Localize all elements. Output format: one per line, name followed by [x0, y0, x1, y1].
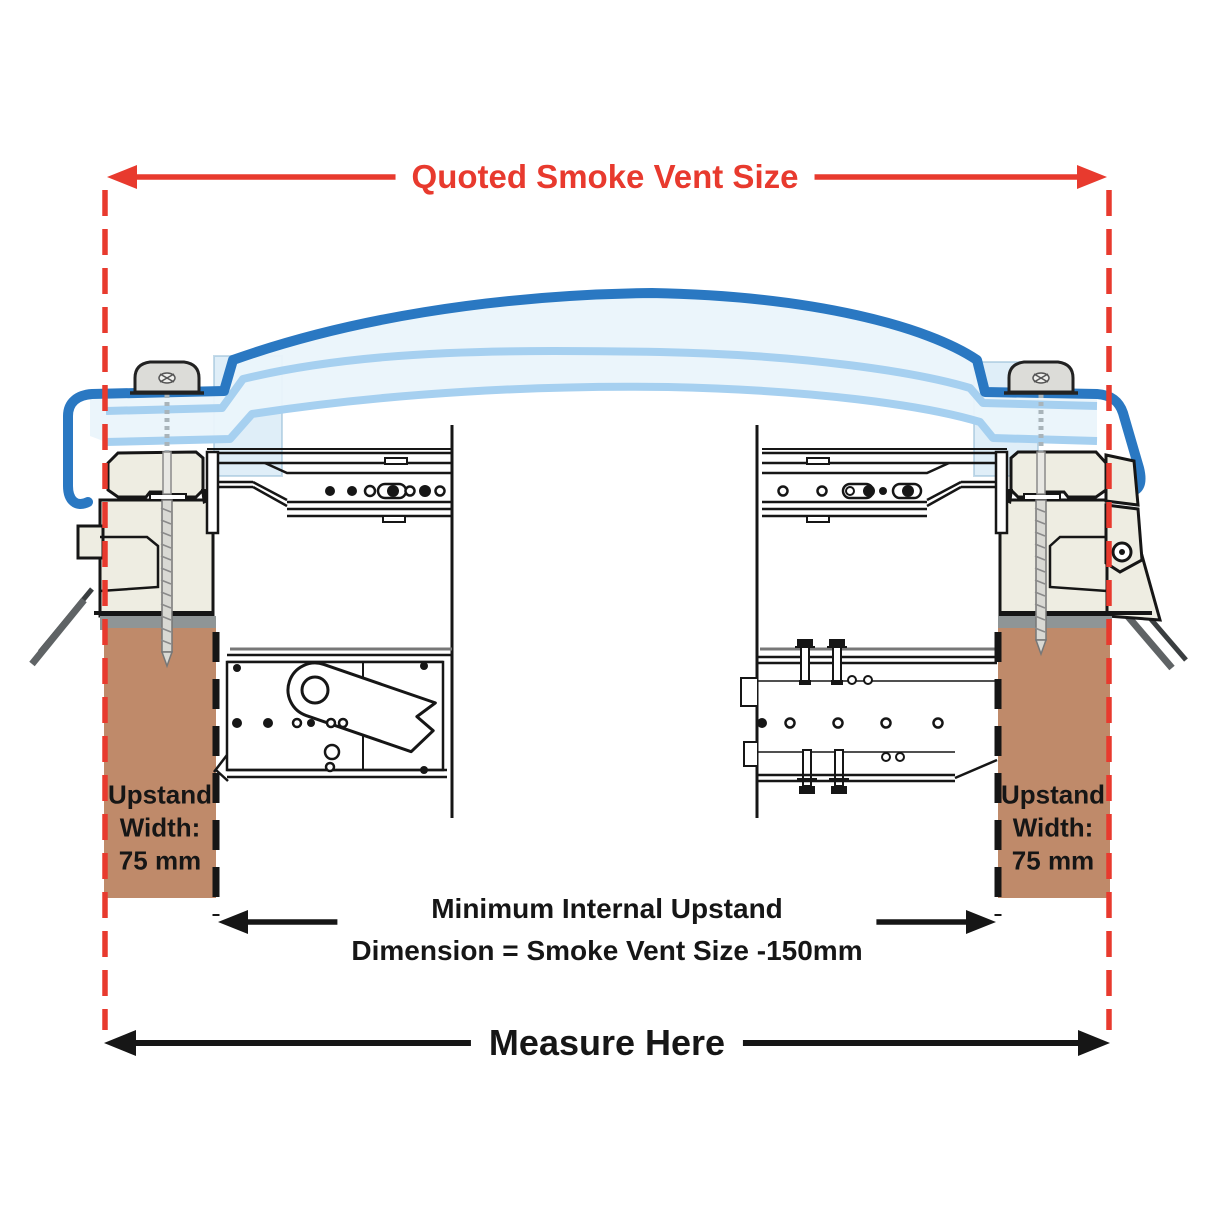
top-bolt-1: [801, 647, 809, 683]
right-rail: [762, 449, 1007, 533]
left-kerb-body: [100, 500, 213, 616]
right-hinge-pin-inner: [1119, 549, 1125, 555]
left-kerb-tab: [78, 526, 103, 558]
right-rail-top-tab: [807, 458, 829, 464]
arrow-left-icon: [107, 165, 137, 189]
right-upstand-label-line2: Width:: [1001, 812, 1105, 845]
top-dimension-label: Quoted Smoke Vent Size: [396, 158, 815, 196]
arrow-right-icon: [1078, 1030, 1110, 1056]
right-sash-cap: [1011, 452, 1106, 497]
right-opening-mechanism: [741, 639, 997, 794]
bottom-dimension-label: Measure Here: [471, 1022, 743, 1064]
right-upstand-label: Upstand Width: 75 mm: [1001, 779, 1105, 878]
arrow-left-icon: [218, 910, 248, 934]
top-bolt-2: [833, 647, 841, 683]
right-mortar-strip: [998, 616, 1112, 630]
left-rail-end-plate: [207, 452, 218, 533]
break-symbol-2: [744, 742, 757, 766]
arrow-left-icon: [104, 1030, 136, 1056]
left-upstand-label: Upstand Width: 75 mm: [108, 779, 212, 878]
internal-dimension-label-line1: Minimum Internal Upstand: [351, 888, 862, 930]
left-rail-top-tab: [385, 458, 407, 464]
glazing-fill: [90, 293, 1097, 442]
left-upstand-label-line2: Width:: [108, 812, 212, 845]
break-symbol-1: [741, 678, 757, 706]
left-mortar-strip: [100, 616, 216, 630]
smoke-vent-measurement-diagram: Quoted Smoke Vent Size Minimum Internal …: [0, 0, 1214, 1214]
left-roof-flashing-line-2: [32, 600, 84, 664]
left-sash-cap: [108, 452, 203, 497]
arrow-right-icon: [966, 910, 996, 934]
internal-dimension-label-line2: Dimension = Smoke Vent Size -150mm: [351, 930, 862, 972]
arrow-right-icon: [1077, 165, 1107, 189]
left-opening-mechanism: [214, 649, 452, 781]
internal-dimension-label: Minimum Internal Upstand Dimension = Smo…: [337, 886, 876, 974]
left-screw-washer: [150, 494, 186, 500]
right-rail-end-plate: [996, 452, 1007, 533]
left-upstand-label-line1: Upstand: [108, 779, 212, 812]
dome-glazing: [68, 293, 1141, 504]
right-kerb-body: [1000, 500, 1107, 616]
right-upstand-label-line1: Upstand: [1001, 779, 1105, 812]
right-screw-washer: [1024, 494, 1060, 500]
right-rail-bottom-tab: [807, 516, 829, 522]
actuator-pivot: [302, 677, 328, 703]
left-rail-bottom-tab: [383, 516, 405, 522]
left-upstand-label-line3: 75 mm: [108, 845, 212, 878]
right-upstand-label-line3: 75 mm: [1001, 845, 1105, 878]
